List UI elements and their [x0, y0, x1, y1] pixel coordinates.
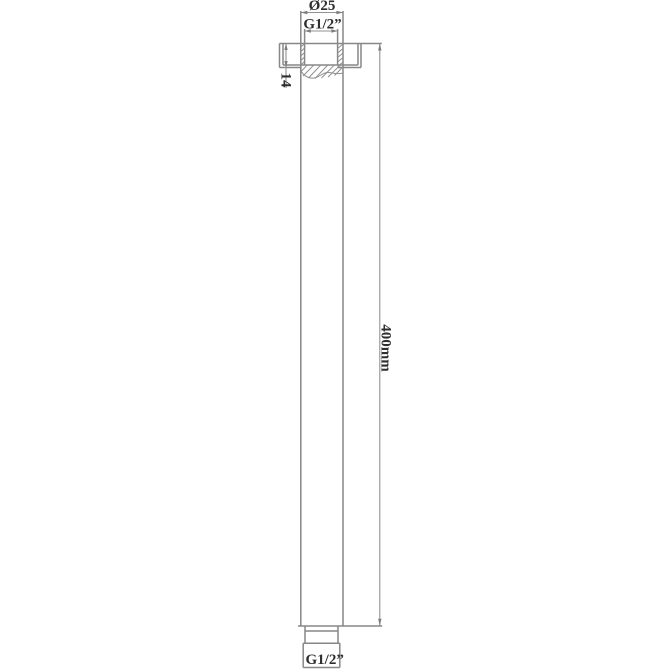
broken-out-section [301, 65, 343, 78]
arm-tube [301, 11, 343, 626]
ceiling-flange [280, 44, 382, 68]
bottom-thread-label: G1/2” [306, 652, 344, 668]
thread-hatch-right [338, 44, 343, 67]
shower-arm-technical-drawing: Ø25 G1/2” 14 400mm [0, 0, 670, 670]
dimension-arm-length: 400mm [378, 44, 394, 626]
arm-length-label: 400mm [378, 324, 394, 372]
bottom-thread-end: G1/2” [298, 626, 382, 668]
diameter-label: Ø25 [309, 0, 336, 14]
top-thread-label: G1/2” [303, 17, 341, 33]
section-hatching [302, 65, 344, 78]
flange-depth-label: 14 [278, 73, 294, 89]
dimension-top-thread: G1/2” [303, 17, 341, 33]
dimension-diameter-25: Ø25 [301, 0, 343, 14]
drawing-canvas: Ø25 G1/2” 14 400mm [0, 0, 670, 670]
thread-bore [301, 29, 343, 67]
